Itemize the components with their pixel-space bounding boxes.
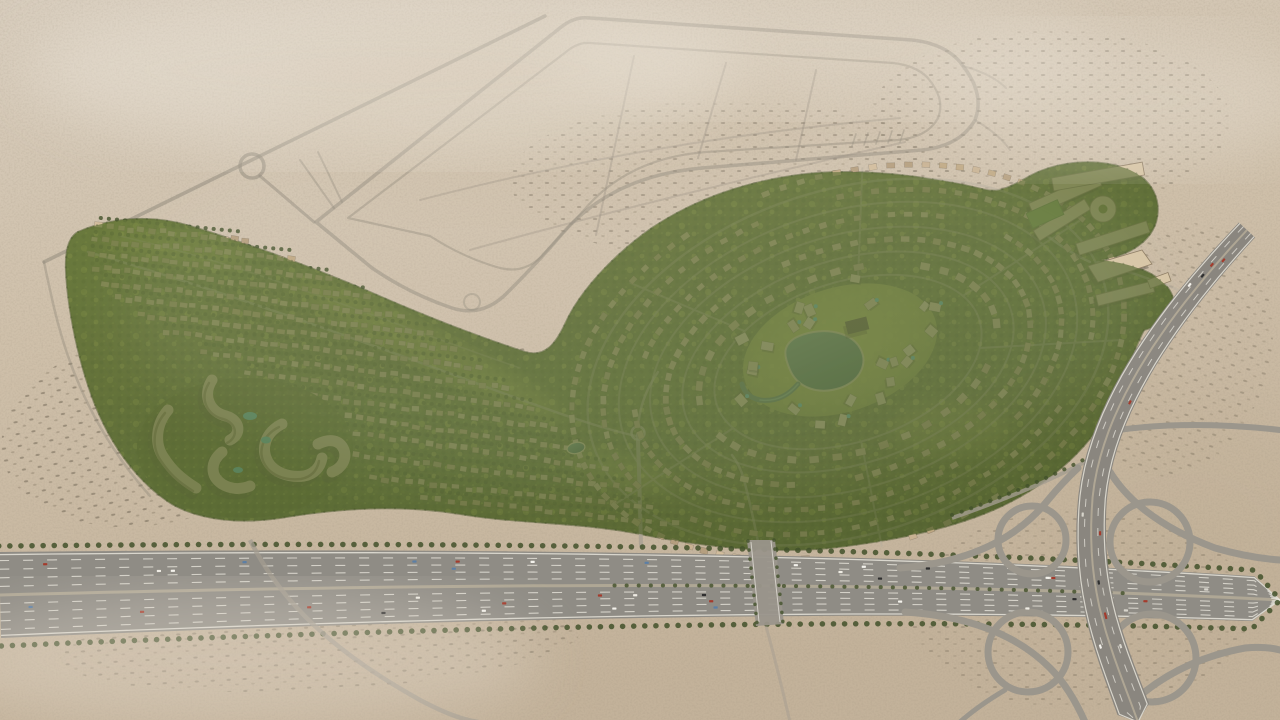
car (416, 597, 420, 599)
car (709, 600, 713, 602)
car (633, 594, 637, 596)
car (1025, 607, 1029, 609)
masterplan-aerial-render: Aerial masterplan render (0, 0, 1280, 720)
ring-villa (887, 163, 895, 168)
car (645, 562, 649, 564)
car (1124, 609, 1128, 611)
car (898, 600, 902, 602)
car (1099, 531, 1101, 535)
car (1072, 598, 1076, 600)
car (502, 602, 506, 604)
car (157, 570, 161, 572)
car (242, 561, 246, 563)
car (28, 606, 32, 608)
car (702, 594, 706, 596)
car (171, 570, 175, 572)
car (1045, 577, 1049, 579)
car (43, 563, 47, 565)
car (926, 567, 930, 569)
ring-villa (868, 163, 877, 170)
car (482, 610, 486, 612)
car (1051, 577, 1055, 579)
car (412, 560, 416, 562)
car (456, 560, 460, 562)
car (862, 566, 866, 568)
car (1143, 600, 1147, 602)
car (838, 571, 842, 573)
car (598, 594, 602, 596)
ring-villa (939, 163, 947, 169)
car (878, 577, 882, 579)
car (381, 612, 385, 614)
car (307, 606, 311, 608)
car (794, 564, 798, 566)
ring-villa (956, 164, 964, 170)
car (1204, 588, 1208, 590)
aerial-render-stage: Aerial masterplan render (0, 0, 1280, 720)
car (452, 568, 456, 570)
car (1082, 512, 1084, 516)
car (140, 611, 144, 613)
ring-villa (904, 162, 912, 167)
car (612, 607, 616, 609)
car (713, 606, 717, 608)
car (531, 561, 535, 563)
ring-villa (922, 162, 930, 168)
